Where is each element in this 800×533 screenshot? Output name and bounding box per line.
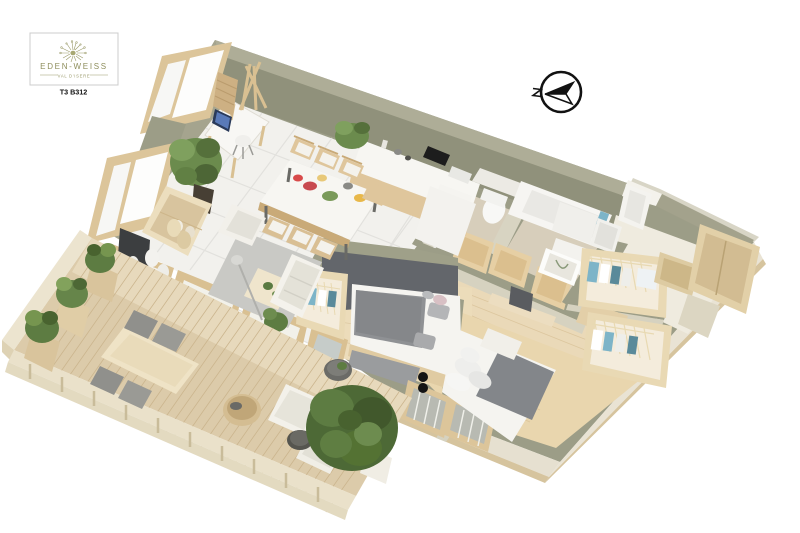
svg-text:T3 B312: T3 B312: [60, 88, 88, 97]
svg-text:EDEN-WEISS: EDEN-WEISS: [40, 62, 108, 71]
svg-text:VAL D'ISERE: VAL D'ISERE: [58, 74, 91, 79]
